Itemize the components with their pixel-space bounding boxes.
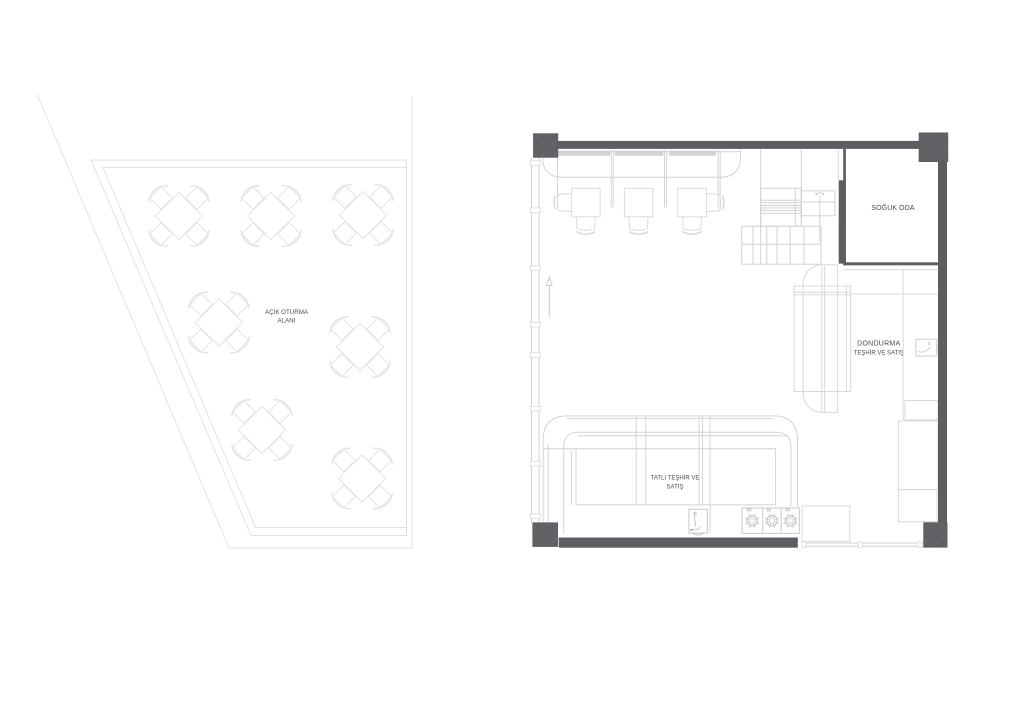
svg-text:TEŞHİR VE SATIŞ: TEŞHİR VE SATIŞ [854,350,904,357]
svg-text:ALANI: ALANI [278,317,296,324]
svg-text:DONDURMA: DONDURMA [857,340,900,347]
svg-text:AÇIK OTURMA: AÇIK OTURMA [265,309,309,316]
svg-text:SOĞUK ODA: SOĞUK ODA [871,203,915,212]
svg-text:TATLI TEŞHİR VE: TATLI TEŞHİR VE [651,474,700,481]
svg-text:SATIŞ: SATIŞ [667,484,684,490]
